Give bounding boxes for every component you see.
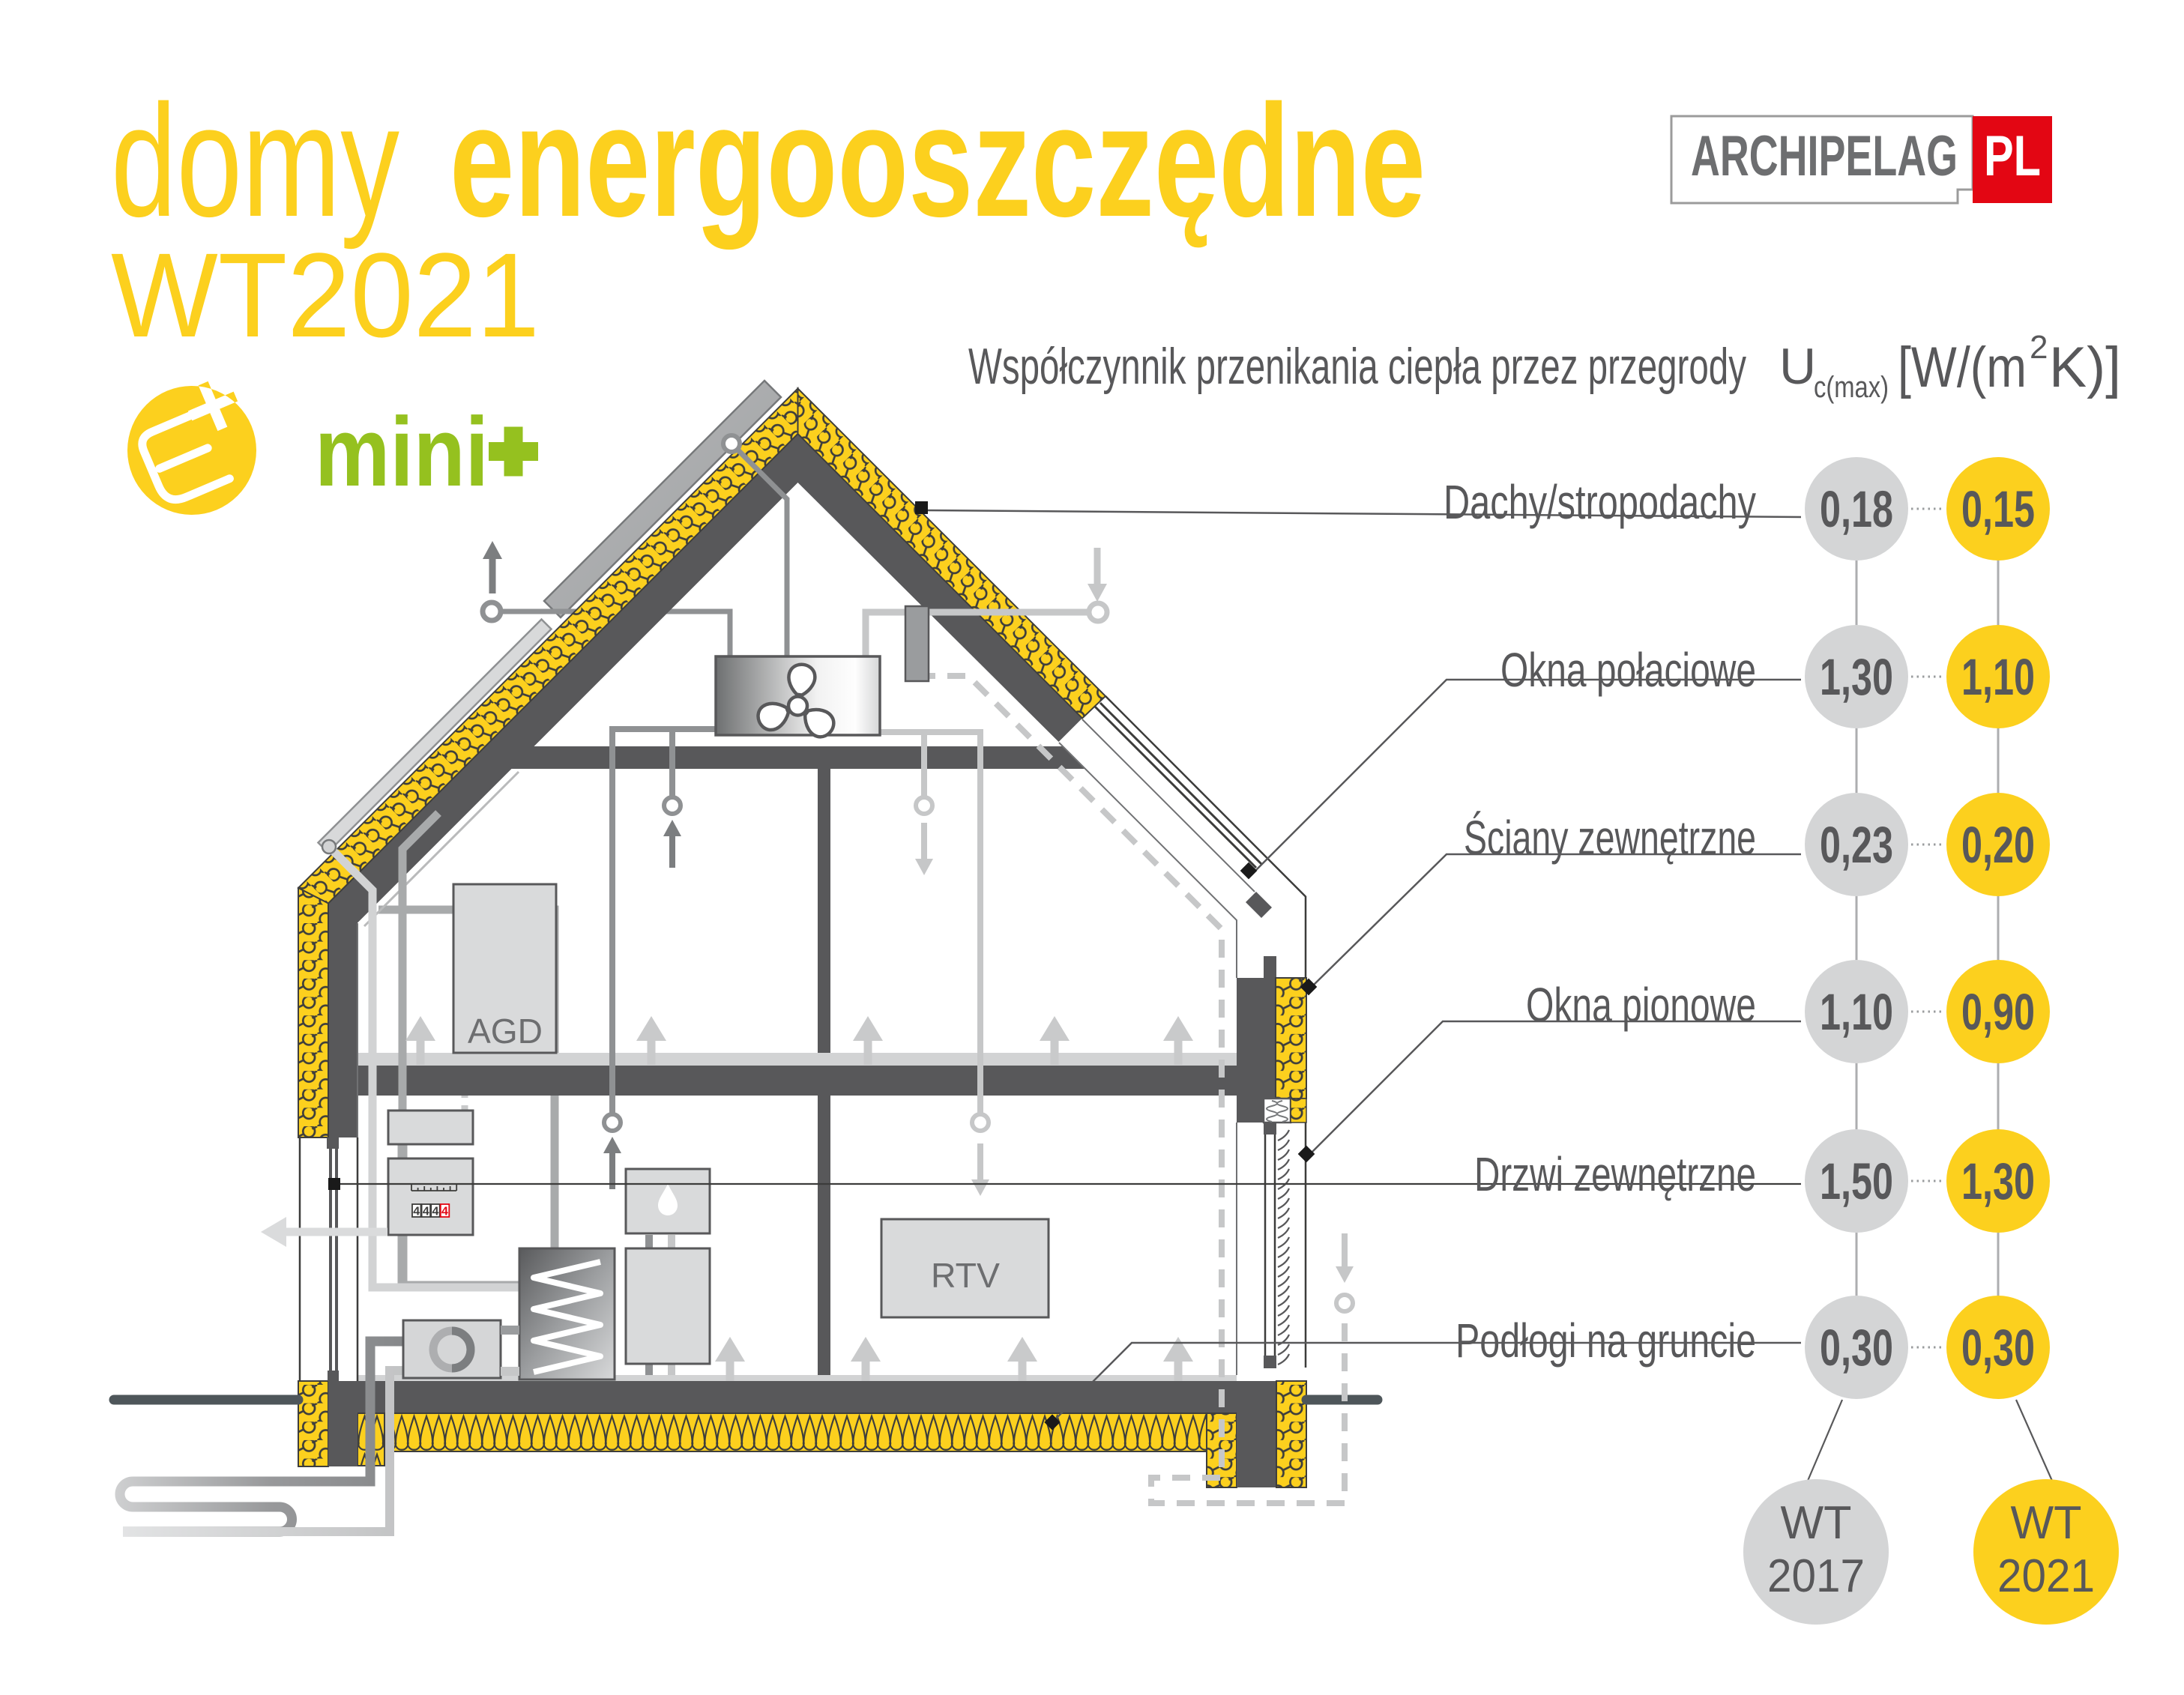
svg-text:1,50: 1,50 bbox=[1820, 1152, 1893, 1210]
svg-text:0,23: 0,23 bbox=[1820, 816, 1893, 874]
svg-text:Okna połaciowe: Okna połaciowe bbox=[1500, 643, 1756, 697]
svg-text:2017: 2017 bbox=[1767, 1550, 1865, 1602]
svg-text:1,30: 1,30 bbox=[1961, 1152, 2035, 1210]
svg-text:energooszczędne: energooszczędne bbox=[450, 72, 1426, 250]
svg-text:1,10: 1,10 bbox=[1820, 983, 1893, 1041]
svg-text:[W/(m: [W/(m bbox=[1898, 336, 2027, 399]
svg-text:0,15: 0,15 bbox=[1961, 480, 2035, 538]
svg-text:PL: PL bbox=[1984, 124, 2041, 188]
svg-text:0,20: 0,20 bbox=[1961, 816, 2035, 874]
svg-text:2: 2 bbox=[2030, 329, 2048, 366]
svg-text:domy: domy bbox=[111, 72, 399, 250]
svg-text:WT: WT bbox=[2011, 1497, 2082, 1549]
svg-text:WT2021: WT2021 bbox=[111, 228, 540, 362]
svg-text:1,10: 1,10 bbox=[1961, 648, 2035, 706]
svg-text:Podłogi na gruncie: Podłogi na gruncie bbox=[1456, 1314, 1756, 1368]
svg-text:4: 4 bbox=[432, 1206, 438, 1218]
svg-text:1,30: 1,30 bbox=[1820, 648, 1893, 706]
svg-text:ARCHIPELAG: ARCHIPELAG bbox=[1691, 124, 1958, 188]
svg-text:Okna pionowe: Okna pionowe bbox=[1526, 978, 1756, 1032]
svg-text:RTV: RTV bbox=[931, 1256, 1000, 1295]
svg-text:0,18: 0,18 bbox=[1820, 480, 1893, 538]
svg-text:0,90: 0,90 bbox=[1961, 983, 2035, 1041]
svg-text:WT: WT bbox=[1781, 1497, 1852, 1549]
svg-text:2021: 2021 bbox=[1997, 1550, 2095, 1602]
svg-text:AGD: AGD bbox=[468, 1012, 543, 1051]
svg-text:Dachy/stropodachy: Dachy/stropodachy bbox=[1444, 475, 1756, 529]
svg-text:Ściany zewnętrzne: Ściany zewnętrzne bbox=[1464, 810, 1756, 865]
svg-text:4: 4 bbox=[413, 1206, 420, 1218]
svg-text:Współczynnik przenikania ciepł: Współczynnik przenikania ciepła przez pr… bbox=[968, 338, 1746, 395]
svg-text:c(max): c(max) bbox=[1814, 371, 1889, 404]
svg-text:4: 4 bbox=[441, 1206, 448, 1218]
svg-text:U: U bbox=[1779, 338, 1816, 395]
svg-text:0,30: 0,30 bbox=[1820, 1319, 1893, 1377]
svg-text:Drzwi zewnętrzne: Drzwi zewnętrzne bbox=[1474, 1147, 1756, 1201]
svg-text:K)]: K)] bbox=[2049, 336, 2121, 399]
svg-text:mini: mini bbox=[315, 396, 489, 507]
svg-text:0,30: 0,30 bbox=[1961, 1319, 2035, 1377]
svg-text:4: 4 bbox=[423, 1206, 429, 1218]
